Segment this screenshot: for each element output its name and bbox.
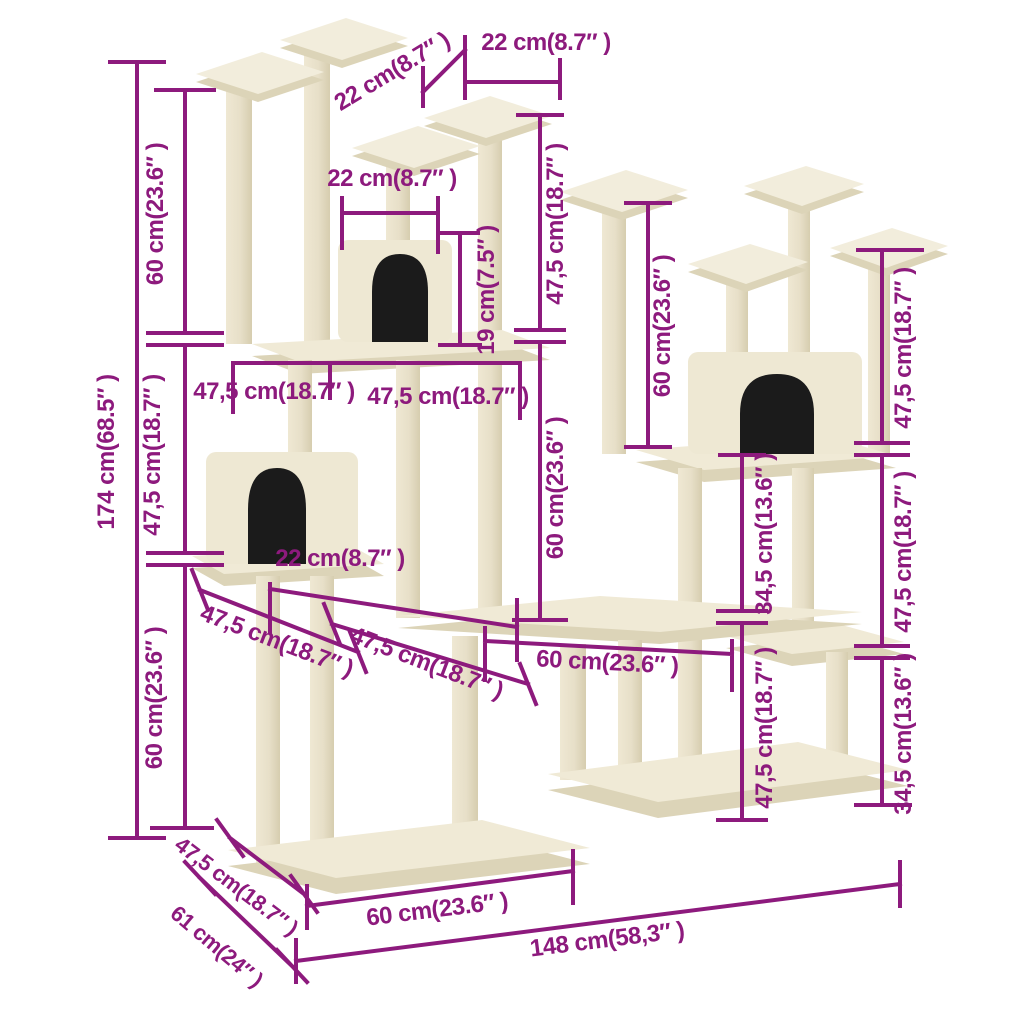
cat-tree-dimension-diagram: 22 cm(8.7″ ) 22 cm(8.7″ ) 60 cm(23.6″ ) … [0, 0, 1024, 1024]
dim-label-mid-span-left: 47,5 cm(18.7″ ) [193, 378, 354, 405]
scratching-post [788, 198, 810, 356]
dim-label-right-upper-post: 47,5 cm(18.7″ ) [890, 267, 917, 428]
house-opening [372, 254, 428, 342]
dim-label-lower-house-width: 22 cm(8.7″ ) [275, 545, 405, 572]
scratching-post [478, 128, 502, 620]
dim-label-right-tower-upper: 60 cm(23.6″ ) [649, 255, 676, 397]
dim-label-inner-right-post: 47,5 cm(18.7″ ) [751, 647, 778, 808]
dim-label-left-lower-segment: 60 cm(23.6″ ) [141, 627, 168, 769]
dim-label-base-side-depth: 61 cm(24″ ) [166, 900, 269, 992]
scratching-post [602, 204, 626, 454]
dim-label-upper-house-width: 22 cm(8.7″ ) [327, 165, 457, 192]
dim-label-right-lower-step: 34,5 cm(13.6″ ) [890, 653, 917, 814]
dim-label-total-width: 148 cm(58,3″ ) [528, 917, 685, 963]
scratching-post [288, 360, 312, 456]
dim-label-left-middle-segment: 47,5 cm(18.7″ ) [139, 374, 166, 535]
dim-label-upper-house-height: 19 cm(7.5″ ) [473, 225, 500, 355]
dim-label-left-upper-segment: 60 cm(23.6″ ) [142, 143, 169, 285]
dim-label-center-post: 60 cm(23.6″ ) [542, 417, 569, 559]
scratching-post [304, 52, 330, 344]
scratching-post [226, 86, 252, 344]
dim-label-mid-span-right: 47,5 cm(18.7″ ) [367, 383, 528, 410]
dim-label-top-right-span: 22 cm(8.7″ ) [481, 29, 611, 56]
dim-label-inner-right-step: 34,5 cm(13.6″ ) [751, 453, 778, 614]
dim-label-total-height: 174 cm(68.5″ ) [93, 374, 120, 529]
dim-label-upper-post: 47,5 cm(18.7″ ) [542, 143, 569, 304]
dim-label-lower-mid-depth: 47,5 cm(18.7″ ) [346, 621, 506, 704]
cat-tree-illustration [192, 18, 948, 894]
dim-label-right-middle-post: 47,5 cm(18.7″ ) [890, 471, 917, 632]
house-opening [740, 374, 814, 454]
scratching-post [868, 260, 890, 454]
